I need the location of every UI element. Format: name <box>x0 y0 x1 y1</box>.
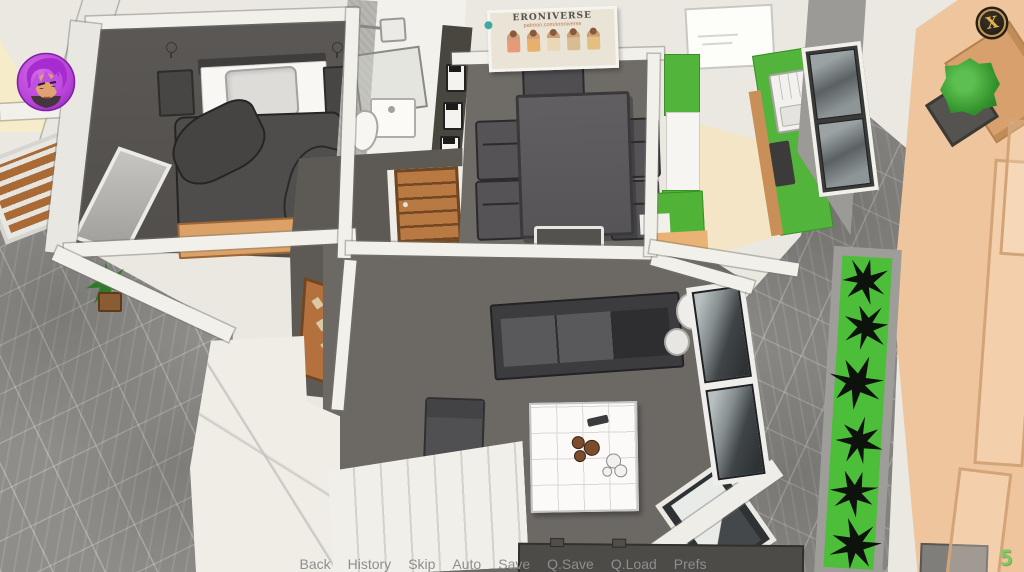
door-glass-pane <box>817 118 871 189</box>
plant-pot <box>98 292 122 312</box>
planter-grass <box>823 255 892 569</box>
front-door <box>394 166 462 245</box>
cup <box>602 467 612 477</box>
nightstand <box>157 69 195 117</box>
apartment-scene[interactable]: ERONIVERSE patreon.com/eroniverse <box>0 0 1024 572</box>
menu-item-qsave[interactable]: Q.Save <box>547 556 594 572</box>
avatar-portrait <box>16 52 76 112</box>
poster-figure <box>586 29 600 49</box>
wall-sconce <box>443 102 463 130</box>
shower-head <box>379 17 407 43</box>
close-icon: X <box>984 14 999 32</box>
menu-item-prefs[interactable]: Prefs <box>674 556 707 572</box>
sofa <box>490 291 685 380</box>
menu-item-history[interactable]: History <box>348 556 392 572</box>
window-pane <box>705 383 765 480</box>
menu-item-save[interactable]: Save <box>498 556 530 572</box>
sprinkler-icon <box>166 42 177 53</box>
poster-figure <box>526 31 540 51</box>
wall-sconce <box>446 64 466 92</box>
kitchen-counter-green <box>664 54 700 116</box>
plant <box>838 254 891 307</box>
plant <box>824 462 885 523</box>
close-button[interactable]: X <box>978 9 1006 37</box>
door-diamond-inlay <box>311 297 323 310</box>
floor-lamp-base <box>664 328 690 356</box>
sofa-cushions <box>501 307 672 367</box>
sofa-knob <box>612 539 626 548</box>
eroniverse-poster: ERONIVERSE patreon.com/eroniverse <box>487 6 619 72</box>
poster-figure <box>546 31 560 51</box>
sofa-knob <box>550 538 564 547</box>
poster-figure <box>506 32 520 52</box>
menu-item-auto[interactable]: Auto <box>452 556 481 572</box>
sprinkler-icon <box>332 42 343 53</box>
plant <box>823 349 891 417</box>
poster-figures <box>506 29 600 52</box>
window-pane <box>692 286 752 383</box>
kitchen-cabinet <box>666 112 700 194</box>
remote-control <box>587 414 609 427</box>
plant <box>829 411 890 472</box>
menu-item-skip[interactable]: Skip <box>408 556 435 572</box>
door-glass-pane <box>809 49 863 120</box>
poster-accent-dot <box>484 21 492 29</box>
plant <box>842 303 891 352</box>
poster-figure <box>566 30 580 50</box>
cup <box>614 464 627 477</box>
coffee-table <box>529 401 639 513</box>
quick-menu: Back History Skip Auto Save Q.Save Q.Loa… <box>0 556 1015 572</box>
game-window: ERONIVERSE patreon.com/eroniverse <box>0 0 1024 572</box>
dining-table <box>516 91 635 239</box>
menu-item-back[interactable]: Back <box>300 556 331 572</box>
menu-item-qload[interactable]: Q.Load <box>611 556 657 572</box>
plate <box>584 440 600 456</box>
plate <box>574 450 586 462</box>
player-avatar[interactable] <box>16 52 76 112</box>
